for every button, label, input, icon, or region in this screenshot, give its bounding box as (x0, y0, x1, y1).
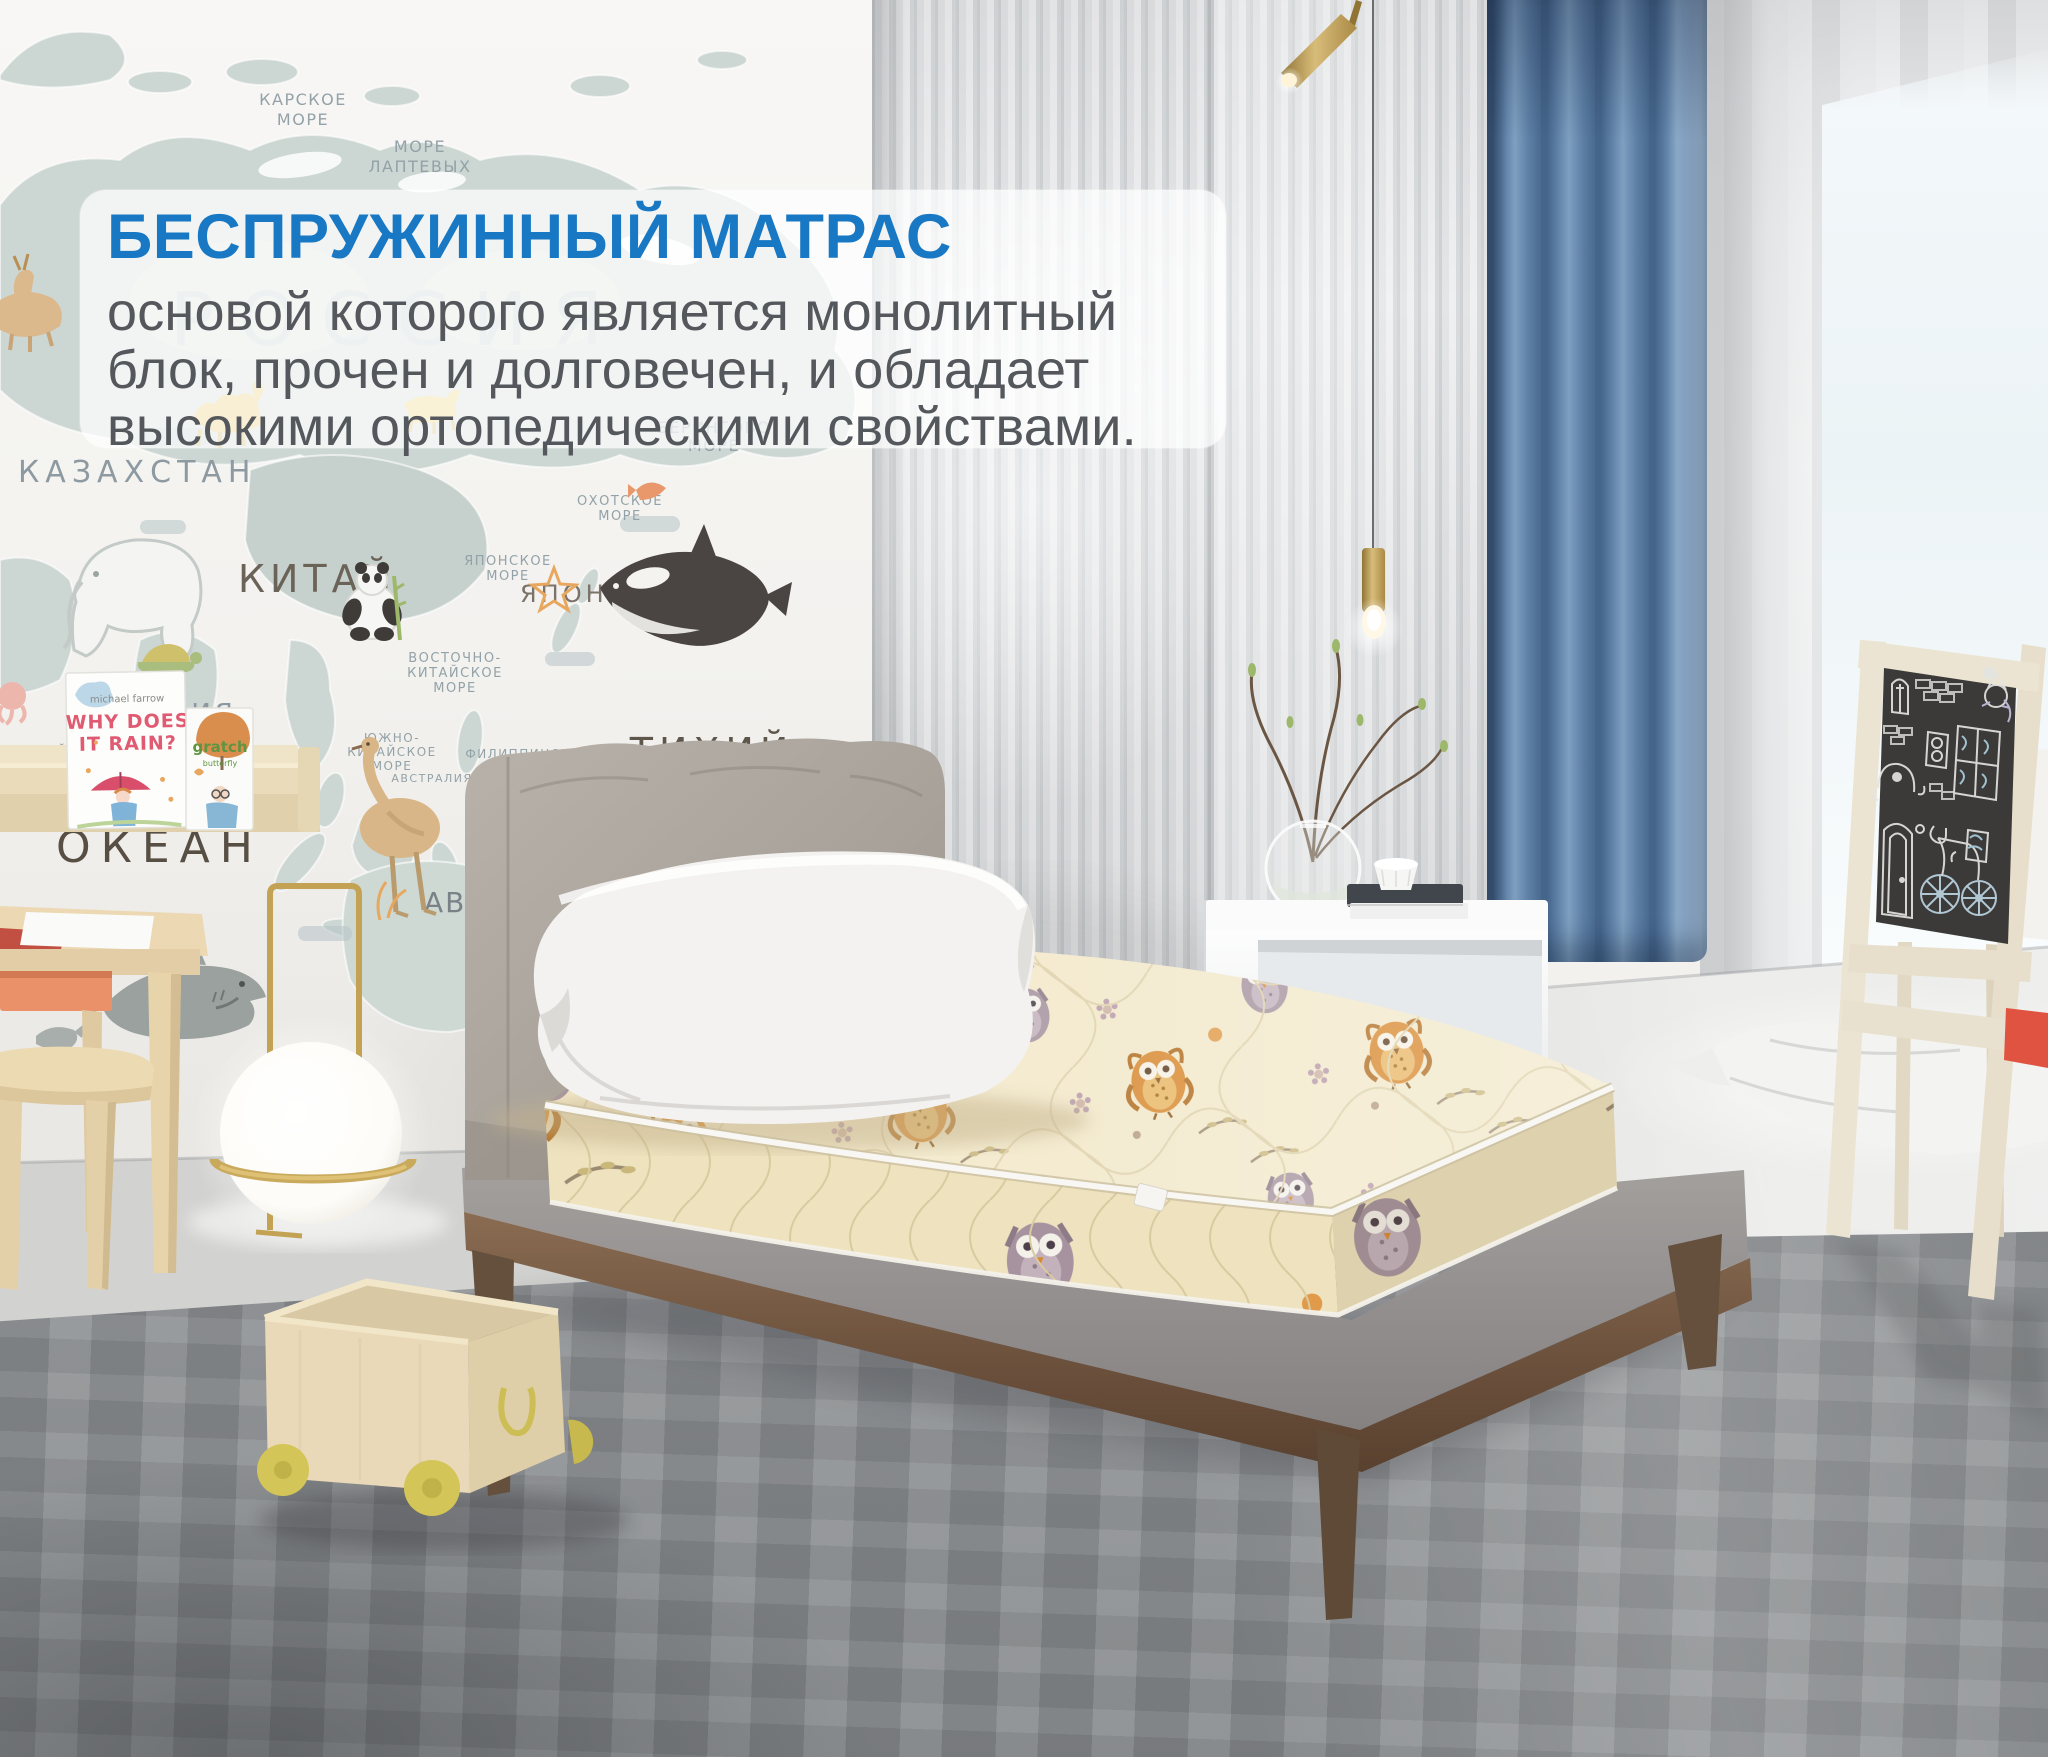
paper-sheet (20, 912, 154, 950)
pillow (534, 851, 1035, 1124)
chalkboard-easel (1826, 640, 2048, 1300)
mural-label-south-china-3: МОРЕ (372, 759, 413, 773)
ceiling-spot-lamp (1275, 0, 1362, 95)
book1-title-2: IT RAIN? (79, 732, 177, 756)
mural-orca (600, 524, 792, 646)
promo-line-2: блок, прочен и долговечен, и обладает (107, 342, 1137, 400)
bedroom-scene: РОССИЯ КАРСКОЕ МОРЕ МОРЕ ЛАПТЕВЫХ БЕРИНГ… (0, 0, 2048, 1757)
bed-leg-middle (1316, 1428, 1360, 1620)
promo-title: БЕСПРУЖИННЫЙ МАТРАС (107, 204, 1137, 270)
bed (462, 738, 1752, 1620)
book-why-does-it-rain: michael farrow WHY DOES IT RAIN? (65, 671, 192, 829)
mural-label-australia: АВСТРАЛИЯ (391, 772, 472, 785)
mural-label-kara-sea-1: КАРСКОЕ (259, 90, 347, 109)
book1-author: michael farrow (90, 693, 165, 705)
wall-bookshelf: michael farrow WHY DOES IT RAIN? gratch … (0, 671, 320, 832)
mural-label-east-china-3: МОРЕ (433, 681, 477, 696)
book2-subtitle: butterfly (203, 759, 238, 768)
mural-whale-small (36, 1024, 84, 1049)
mural-label-kazakhstan: КАЗАХСТАН (18, 455, 256, 490)
vase (1248, 639, 1448, 915)
mural-label-laptev-2: ЛАПТЕВЫХ (369, 157, 472, 176)
cup (1374, 858, 1418, 890)
book1-title-1: WHY DOES (65, 710, 189, 734)
easel-red-tray (2004, 1008, 2048, 1068)
book2-title: gratch (193, 738, 248, 756)
mural-label-kara-sea-2: МОРЕ (277, 110, 329, 129)
mural-label-laptev-1: МОРЕ (394, 137, 446, 156)
stool (0, 1047, 154, 1290)
book-gratch: gratch butterfly (186, 708, 253, 830)
mural-label-east-china-1: ВОСТОЧНО- (408, 651, 502, 666)
easel-floor-shadow (1838, 1240, 2048, 1420)
promo-line-1: основой которого является монолитный (107, 284, 1137, 342)
promo-line-3: высокими ортопедическими свойствами. (107, 399, 1137, 457)
mural-elephant (64, 540, 201, 660)
mural-octopus (0, 682, 26, 724)
promo-text-panel: БЕСПРУЖИННЫЙ МАТРАС основой которого явл… (80, 190, 1226, 448)
mural-label-east-china-2: КИТАЙСКОЕ (407, 665, 503, 681)
mural-label-okhotsk-2: МОРЕ (598, 509, 642, 524)
toy-cart (257, 1282, 593, 1516)
mural-label-japan-sea-1: ЯПОНСКОЕ (464, 554, 552, 569)
pendant-lamp (1344, 0, 1404, 658)
